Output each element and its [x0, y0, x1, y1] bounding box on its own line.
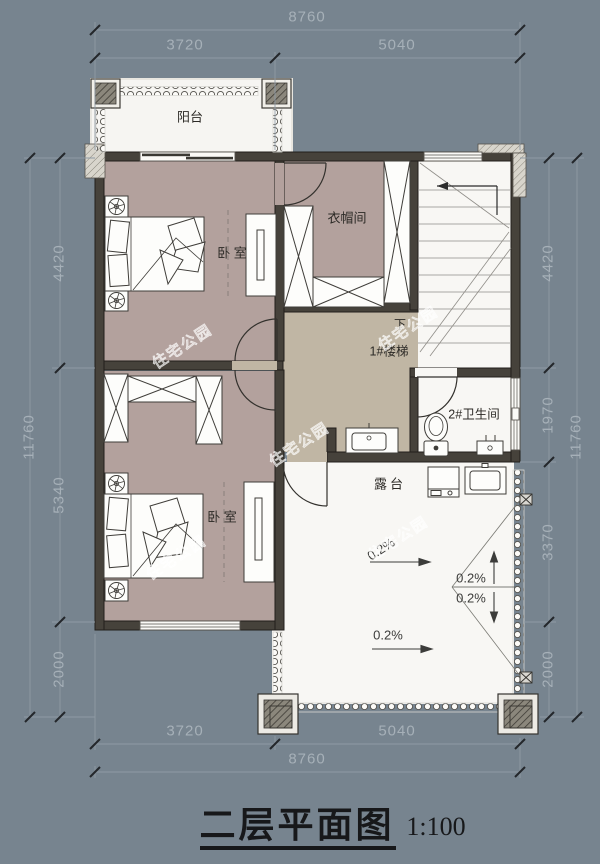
dim-top-seg: 3720 [166, 37, 203, 54]
floorplan-canvas: 阳台 卧 室 衣帽间 下 1#楼梯 2#卫生间 卧 室 露台 0.2% 0.2%… [0, 0, 600, 864]
title-scale: 1:100 [406, 812, 465, 842]
bed-icon [105, 217, 205, 291]
slope-label: 0.2% [456, 571, 486, 586]
nightstand-lamp-icon [105, 290, 128, 311]
window-bathroom-right [511, 378, 520, 450]
terrace-appliances [428, 464, 506, 498]
nightstand-lamp-icon [105, 196, 128, 217]
column [498, 694, 538, 734]
wardrobe-icon [128, 376, 196, 402]
toilet-icon [424, 413, 448, 456]
dim-bottom-seg: 5040 [378, 723, 415, 740]
wardrobe-icon [104, 374, 128, 442]
wardrobe-icon [384, 161, 410, 303]
dim-left-seg: 4420 [51, 244, 68, 281]
wall-hall-stairs [410, 161, 418, 310]
hall-washbasin [346, 423, 398, 453]
dim-bottom-seg: 3720 [166, 723, 203, 740]
slope-label: 0.2% [373, 628, 403, 643]
dim-left-seg: 5340 [51, 476, 68, 513]
bedroom-top-label: 卧 室 [217, 243, 247, 262]
page-title: 二层平面图 [199, 796, 394, 848]
dim-top-total: 8760 [288, 9, 325, 26]
dim-left-seg: 2000 [51, 650, 68, 687]
dim-right-seg: 1970 [540, 396, 557, 433]
window-bedroom-bottom [140, 621, 240, 630]
bedroom-bottom-label: 卧 室 [207, 507, 237, 526]
terrace-railing-left [273, 632, 282, 696]
dim-right-total: 11760 [568, 414, 585, 460]
pier-top-right-v [513, 153, 526, 197]
wall-bedroom-hall [275, 370, 284, 630]
terrace-sink-icon [465, 464, 506, 495]
balcony-railing-left [96, 101, 105, 152]
dim-right-seg: 4420 [540, 244, 557, 281]
dim-right-seg: 3370 [540, 523, 557, 560]
wall-left [95, 152, 104, 630]
railing-marker [520, 672, 532, 683]
nightstand-lamp-icon [105, 580, 128, 601]
balcony-label: 阳台 [177, 107, 203, 126]
sliding-door-balcony [140, 152, 235, 161]
cloakroom-label: 衣帽间 [327, 208, 366, 227]
dim-right-seg: 2000 [540, 650, 557, 687]
wardrobe-icon [313, 277, 384, 307]
dresser-icon [246, 214, 276, 296]
wardrobe-icon [284, 206, 313, 307]
dim-bottom-total: 8760 [288, 751, 325, 768]
window-stairs-top [424, 152, 482, 161]
balcony-railing-top [118, 87, 258, 96]
wall-bathroom-left [410, 377, 418, 452]
dresser-icon [244, 482, 274, 582]
nightstand-lamp-icon [105, 473, 128, 494]
railing-marker [520, 494, 532, 505]
terrace-railing-bottom [296, 703, 499, 712]
column [262, 79, 291, 108]
column [258, 694, 298, 734]
bathroom-label: 2#卫生间 [448, 404, 499, 423]
dim-left-total: 11760 [21, 414, 38, 460]
washing-machine-icon [428, 467, 459, 497]
terrace-label: 露台 [374, 474, 406, 493]
balcony-railing-right [273, 101, 282, 152]
dim-top-seg: 5040 [378, 37, 415, 54]
slope-label: 0.2% [456, 591, 486, 606]
wardrobe-icon [196, 376, 222, 444]
pier-top-right-h [478, 144, 524, 153]
title-underline [200, 846, 396, 850]
